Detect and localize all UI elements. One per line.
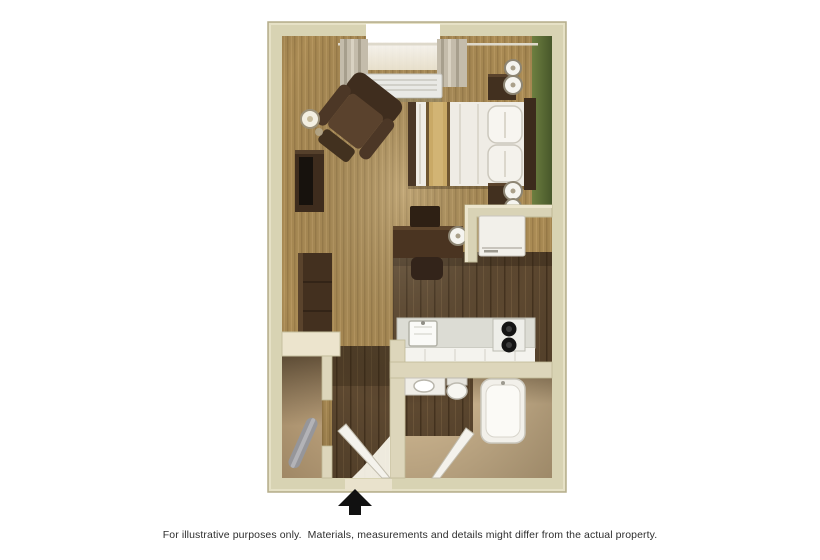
tv — [299, 157, 313, 205]
wall-living-closet — [282, 332, 340, 356]
bathroom-vanity — [405, 378, 445, 395]
floorplan — [0, 0, 820, 560]
entry-arrow-icon — [338, 489, 372, 515]
desk-chair — [411, 257, 443, 280]
disclaimer-text: For illustrative purposes only. Material… — [0, 529, 820, 541]
entry-threshold — [345, 479, 392, 491]
bed-runner — [426, 102, 450, 186]
bathtub — [481, 379, 525, 443]
wall-closet-right-lower — [322, 446, 332, 478]
page: For illustrative purposes only. Material… — [0, 0, 820, 560]
refrigerator — [479, 216, 525, 256]
wall-entry-bathroom — [390, 340, 405, 478]
headboard — [524, 98, 536, 190]
wall-kitchen-bathroom — [390, 362, 552, 378]
wall-closet-right-upper — [322, 356, 332, 400]
dresser — [298, 253, 332, 341]
window — [366, 24, 440, 70]
desk-lamp-icon — [449, 227, 467, 245]
toilet — [447, 378, 467, 399]
kitchen-sink — [409, 321, 437, 346]
two-burner-stove — [493, 319, 525, 353]
bed — [408, 98, 536, 190]
desk-monitor — [410, 206, 440, 227]
